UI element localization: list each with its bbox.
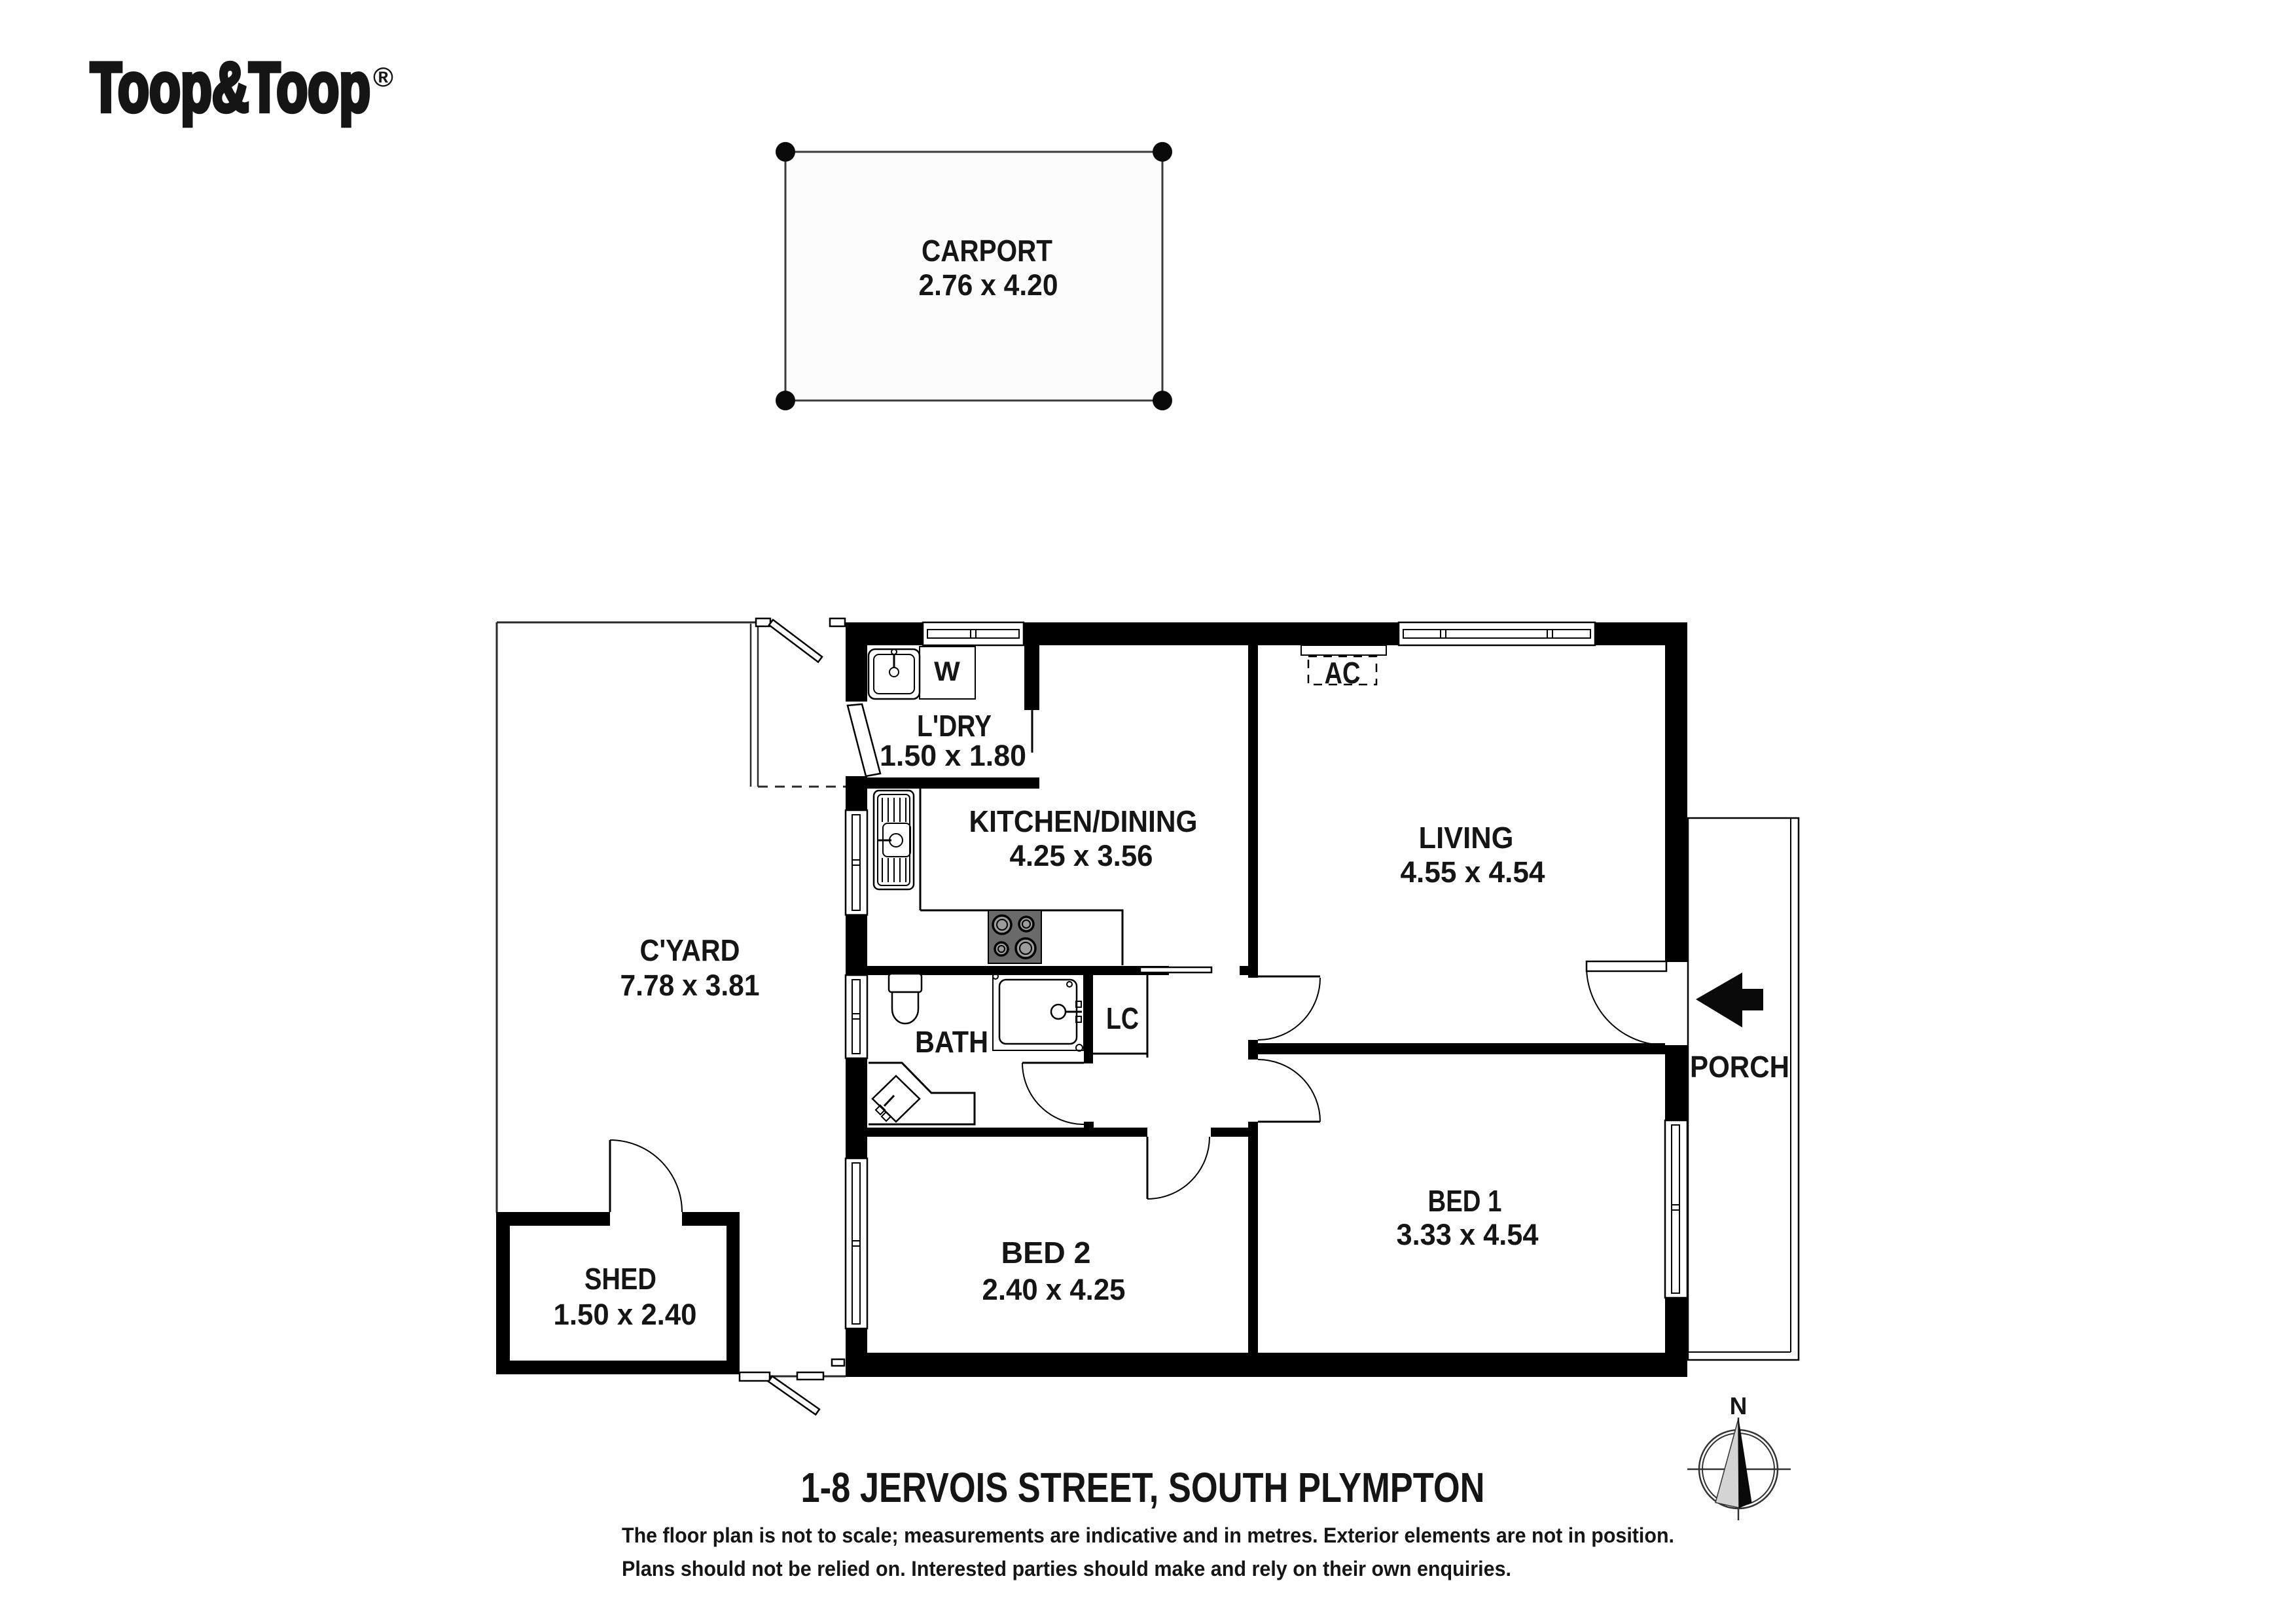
svg-text:W: W — [934, 656, 960, 687]
svg-text:Toop&Toop: Toop&Toop — [90, 48, 370, 126]
svg-text:L'DRY: L'DRY — [917, 709, 992, 743]
svg-text:The floor plan is not to scale: The floor plan is not to scale; measurem… — [622, 1524, 1674, 1547]
svg-text:PORCH: PORCH — [1690, 1050, 1789, 1084]
svg-text:3.33 x 4.54: 3.33 x 4.54 — [1397, 1218, 1539, 1251]
svg-text:4.25 x 3.56: 4.25 x 3.56 — [1010, 839, 1153, 872]
svg-text:CARPORT: CARPORT — [922, 234, 1052, 268]
svg-text:BATH: BATH — [915, 1025, 988, 1059]
svg-text:2.76 x 4.20: 2.76 x 4.20 — [919, 268, 1058, 302]
svg-text:1-8 JERVOIS STREET, SOUTH PLYM: 1-8 JERVOIS STREET, SOUTH PLYMPTON — [801, 1464, 1485, 1511]
svg-text:C'YARD: C'YARD — [640, 933, 740, 967]
svg-text:1.50 x 2.40: 1.50 x 2.40 — [554, 1298, 697, 1331]
svg-text:AC: AC — [1325, 656, 1361, 690]
svg-text:2.40 x 4.25: 2.40 x 4.25 — [982, 1273, 1126, 1306]
svg-text:7.78 x 3.81: 7.78 x 3.81 — [620, 969, 760, 1002]
svg-text:KITCHEN/DINING: KITCHEN/DINING — [969, 804, 1198, 838]
svg-text:LIVING: LIVING — [1419, 821, 1514, 855]
svg-text:®: ® — [373, 62, 393, 92]
svg-text:4.55 x 4.54: 4.55 x 4.54 — [1401, 855, 1545, 889]
svg-text:N: N — [1730, 1393, 1748, 1419]
svg-text:Plans should not be relied on.: Plans should not be relied on. Intereste… — [622, 1557, 1511, 1580]
svg-text:BED 1: BED 1 — [1428, 1184, 1502, 1218]
svg-text:1.50 x 1.80: 1.50 x 1.80 — [880, 739, 1026, 772]
svg-text:LC: LC — [1106, 1001, 1139, 1035]
svg-text:SHED: SHED — [584, 1262, 656, 1296]
svg-text:BED 2: BED 2 — [1001, 1236, 1091, 1270]
